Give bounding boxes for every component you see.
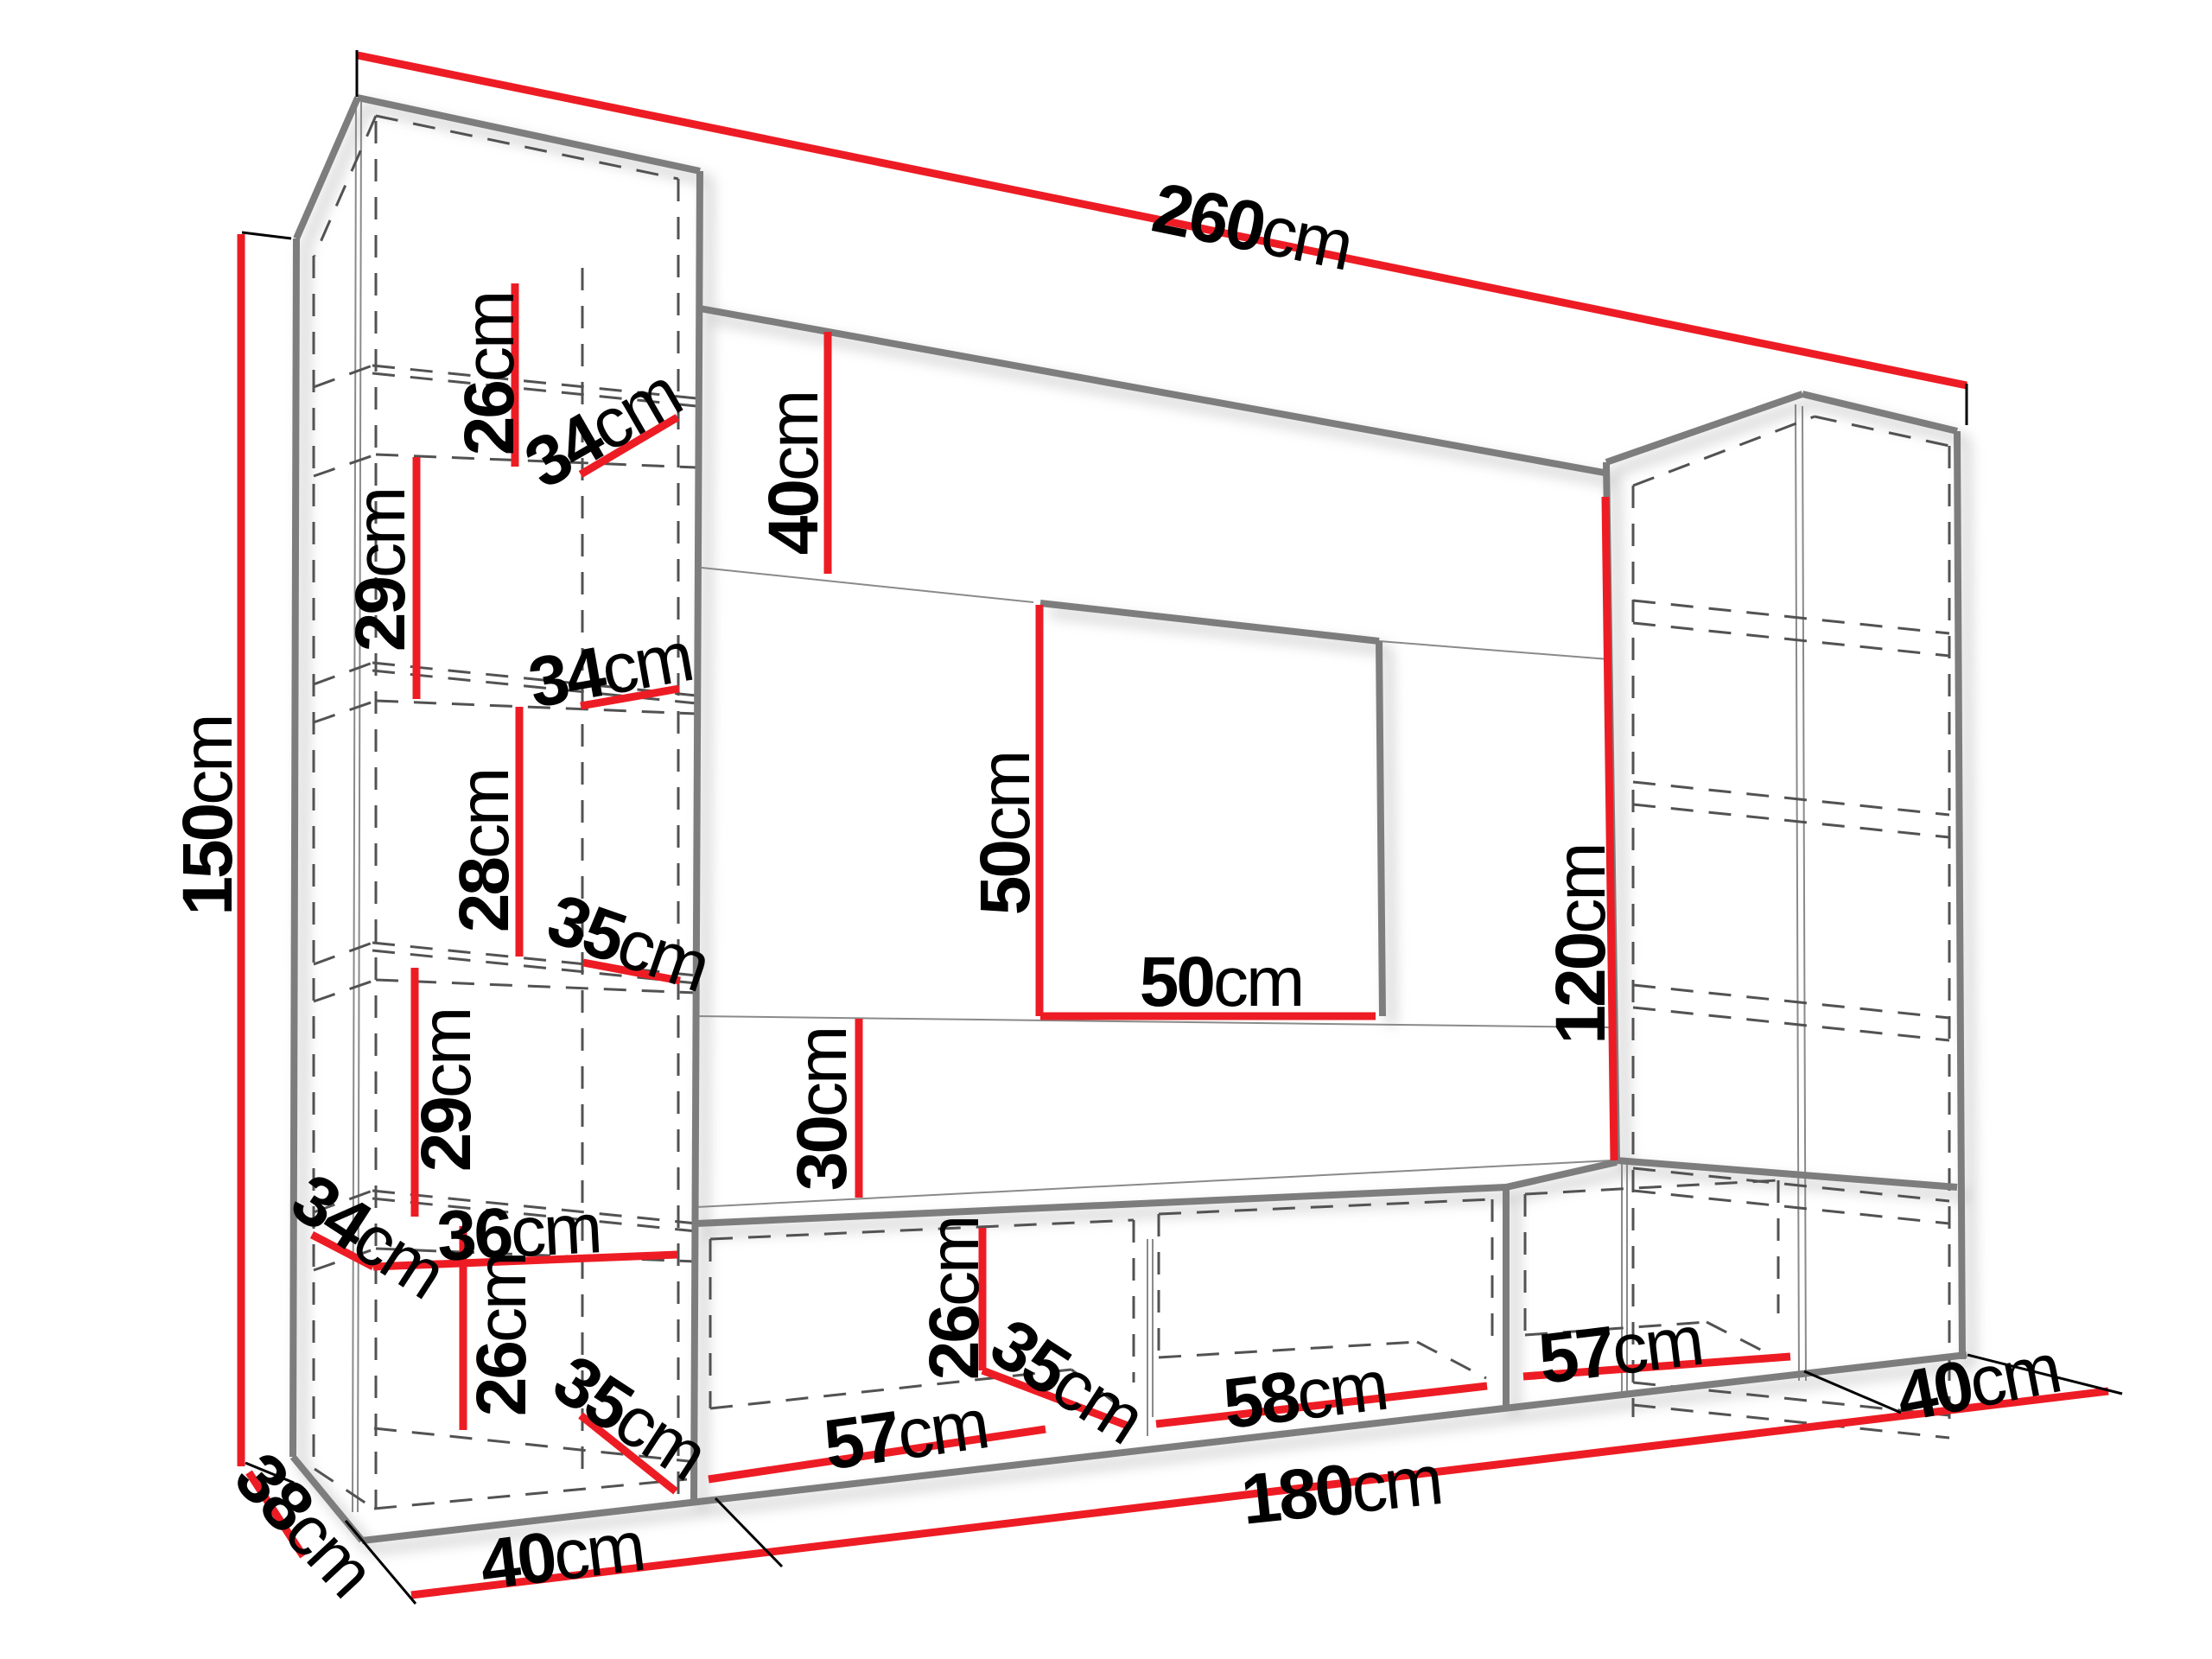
- svg-text:30cm: 30cm: [783, 1028, 861, 1192]
- svg-text:28cm: 28cm: [445, 770, 524, 933]
- svg-text:40cm: 40cm: [754, 392, 833, 556]
- svg-text:50cm: 50cm: [1140, 943, 1303, 1021]
- svg-text:150cm: 150cm: [168, 715, 247, 915]
- svg-text:29cm: 29cm: [341, 489, 420, 652]
- svg-text:29cm: 29cm: [407, 1009, 486, 1173]
- svg-text:26cm: 26cm: [915, 1217, 994, 1381]
- svg-text:120cm: 120cm: [1541, 844, 1620, 1044]
- svg-text:26cm: 26cm: [462, 1254, 541, 1417]
- svg-text:50cm: 50cm: [966, 753, 1045, 916]
- svg-text:26cm: 26cm: [450, 293, 529, 456]
